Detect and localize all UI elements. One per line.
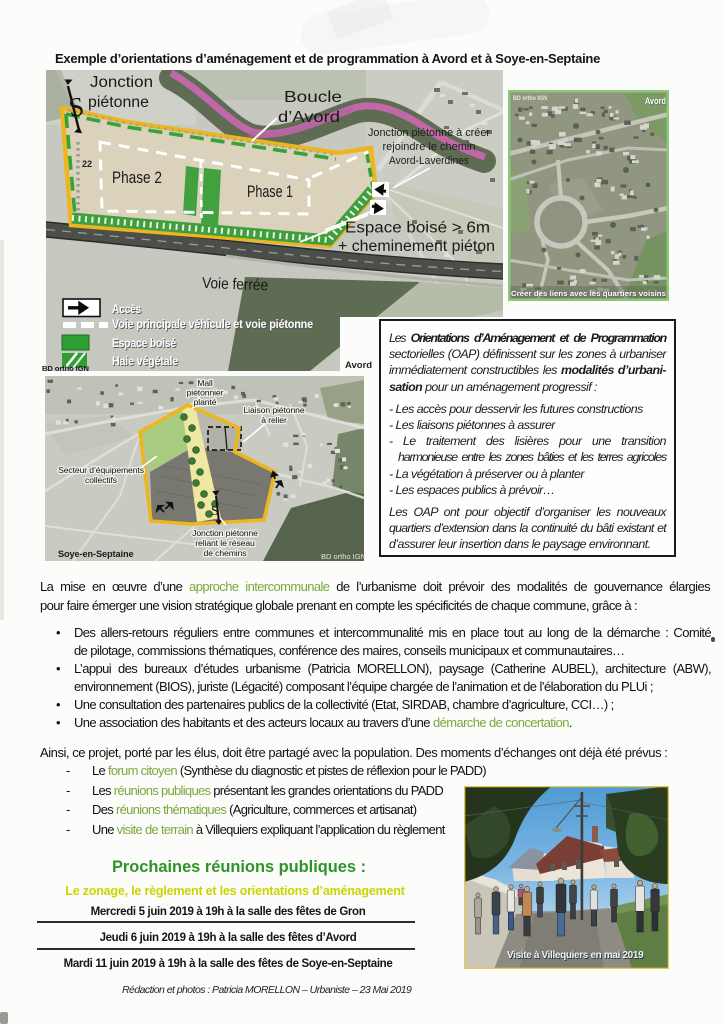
svg-text:Avord: Avord (645, 96, 666, 106)
svg-text:Avord-Laverdines: Avord-Laverdines (389, 155, 469, 167)
svg-text:rejoindre le chemin: rejoindre le chemin (383, 141, 476, 153)
svg-text:Jonction: Jonction (90, 74, 153, 91)
svg-text:Liaison piétonne: Liaison piétonne (244, 405, 305, 415)
svg-text:Phase 2: Phase 2 (112, 169, 162, 187)
svg-text:de chemins: de chemins (204, 548, 247, 558)
svg-text:Espace boisé > 6m: Espace boisé > 6m (345, 220, 490, 237)
svg-text:Accès: Accès (112, 304, 141, 316)
svg-text:22: 22 (82, 159, 92, 169)
svg-text:+ cheminement piéton: + cheminement piéton (338, 238, 495, 255)
svg-text:Voie ferrée: Voie ferrée (202, 275, 269, 294)
svg-text:piétonnier: piétonnier (187, 388, 224, 398)
svg-text:collectifs: collectifs (85, 475, 117, 485)
svg-text:Créer des liens avec les quart: Créer des liens avec les quartiers voisi… (511, 289, 666, 298)
svg-text:Phase 1: Phase 1 (247, 183, 293, 201)
svg-text:Visite à Villequiers en mai 20: Visite à Villequiers en mai 2019 (507, 950, 644, 961)
svg-text:Jonction piétonne à créer: Jonction piétonne à créer (368, 127, 490, 139)
svg-text:piétonne: piétonne (88, 94, 149, 111)
svg-text:Espace boisé: Espace boisé (112, 338, 176, 350)
svg-text:S: S (211, 504, 219, 519)
svg-text:BD ortho IGN: BD ortho IGN (513, 95, 547, 102)
svg-text:Voie principale véhicule et vo: Voie principale véhicule et voie piétonn… (112, 319, 313, 331)
svg-text:Jonction piétonne: Jonction piétonne (192, 528, 258, 538)
svg-text:d’Avord: d’Avord (278, 109, 340, 126)
svg-text:reliant le réseau: reliant le réseau (195, 538, 255, 548)
svg-text:Soye-en-Septaine: Soye-en-Septaine (58, 549, 134, 559)
svg-text:Secteur d’équipements: Secteur d’équipements (58, 465, 144, 475)
svg-text:BD ortho IGN: BD ortho IGN (321, 552, 364, 561)
svg-text:Mall: Mall (197, 378, 213, 388)
svg-text:planté: planté (194, 397, 217, 407)
svg-text:Boucle: Boucle (284, 89, 342, 106)
svg-text:à relier: à relier (261, 415, 287, 425)
svg-text:Haie végétale: Haie végétale (112, 356, 178, 368)
